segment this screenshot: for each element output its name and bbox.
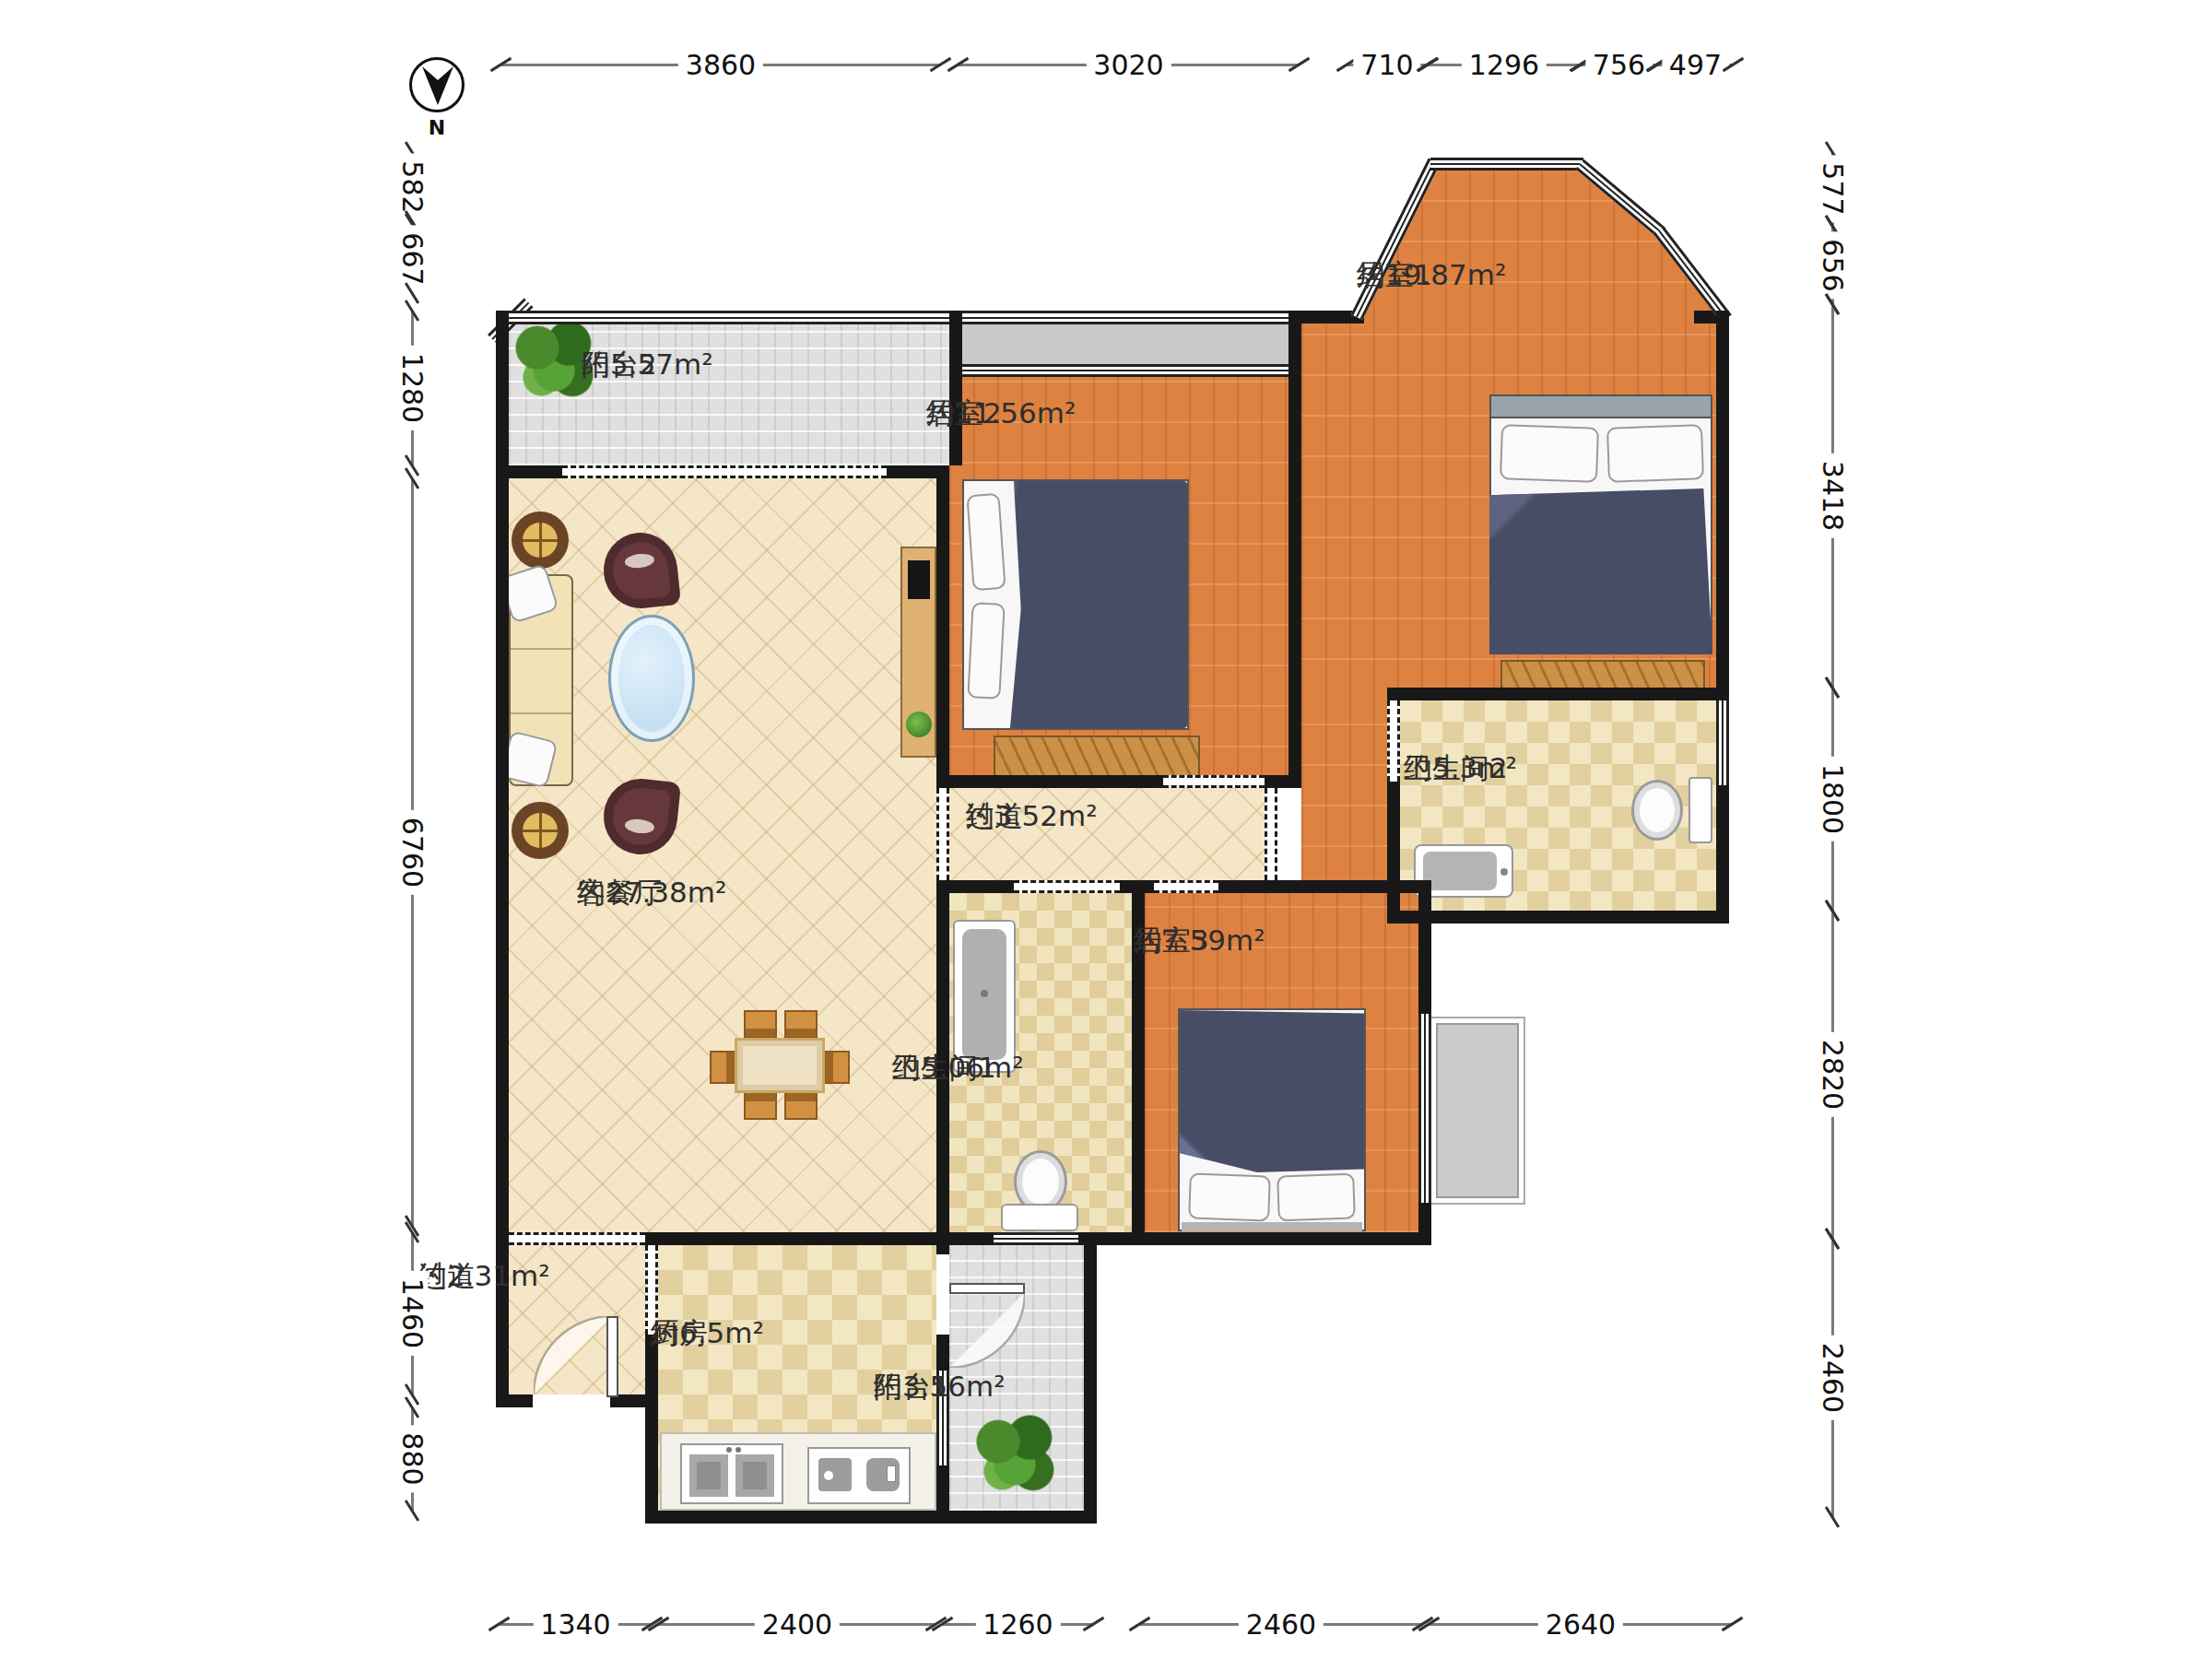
north-arrow-icon: [422, 66, 453, 105]
ac-platform: [1436, 1023, 1519, 1198]
dim-top-3: 1296: [1428, 50, 1581, 79]
room-area: 约7.59m²: [1134, 922, 1265, 959]
wall: [1078, 1232, 1431, 1245]
dim-right-3: 1800: [1818, 688, 1847, 911]
dim-right-0: 577: [1818, 152, 1847, 226]
room-area: 约5.06m²: [892, 1049, 1024, 1086]
dim-top-4: 756: [1581, 50, 1657, 79]
dim-left-0: 582: [397, 152, 427, 221]
wall: [936, 1335, 949, 1371]
headboard-bedroom1: [1489, 394, 1712, 418]
side-table-bottom: [512, 802, 569, 859]
wall: [645, 1335, 658, 1524]
wall: [949, 311, 962, 465]
north-compass: [409, 57, 465, 112]
window-bedroom1-bay-top: [1430, 158, 1583, 171]
door-bedroom3: [1154, 880, 1218, 893]
dining-table: [735, 1038, 825, 1093]
wall: [1716, 785, 1729, 924]
pillow-bedroom2: [967, 602, 1005, 700]
dim-bottom-4: 2640: [1429, 1609, 1733, 1639]
dining-chair: [744, 1091, 777, 1120]
floor-plan: 阳台2 约5.57m² 居室2 约11.56m² 居室1 约19.87m² 客餐…: [0, 0, 2212, 1659]
wall: [1387, 911, 1729, 924]
wall: [496, 1394, 533, 1407]
pillow-bedroom1: [1500, 424, 1599, 483]
dim-left-4: 1460: [397, 1232, 427, 1394]
wall: [936, 1245, 949, 1254]
wall: [645, 1511, 1097, 1524]
dim-bottom-0: 1340: [499, 1609, 653, 1639]
kitchen-stove: [807, 1447, 911, 1504]
door-bedroom2: [1163, 775, 1265, 788]
window-bath2: [1716, 700, 1729, 785]
dining-chair: [744, 1010, 777, 1039]
toilet-bath2: [1631, 780, 1683, 841]
opening-balcony2-living: [562, 465, 887, 478]
blanket-bedroom2: [1006, 481, 1187, 728]
wall: [936, 465, 949, 788]
dining-chair: [823, 1051, 850, 1084]
wall: [1418, 893, 1431, 1014]
room-area: 约27.38m²: [577, 874, 726, 911]
wall: [1288, 311, 1301, 788]
window-bedroom2-bay-outer: [962, 311, 1288, 324]
room-area: 约19.87m²: [1357, 256, 1506, 293]
window-bath1-balcony1: [994, 1232, 1078, 1245]
north-label: N: [409, 116, 465, 139]
dining-chair: [784, 1091, 818, 1120]
room-area: 约2.31m²: [418, 1257, 550, 1294]
toilet-tank-bath2: [1688, 777, 1712, 843]
dim-right-4: 2820: [1818, 911, 1847, 1239]
kitchen-sink: [680, 1443, 783, 1504]
wall: [936, 775, 1163, 788]
wall: [1265, 775, 1301, 788]
door-arc-entry: [534, 1316, 612, 1394]
wall: [1387, 688, 1729, 700]
dim-bottom-2: 1260: [942, 1609, 1094, 1639]
door-bedroom1: [1265, 788, 1277, 880]
pillow-bedroom1: [1606, 424, 1704, 483]
window-balcony2: [509, 311, 949, 324]
balcony1-door-leaf: [949, 1283, 1025, 1294]
room-area: 约3.56m²: [874, 1368, 1006, 1405]
window-sill-bedroom2-bay: [962, 324, 1288, 364]
dim-bottom-3: 2460: [1139, 1609, 1423, 1639]
entry-door-leaf: [606, 1316, 618, 1397]
floor-bedroom1-nook: [1301, 688, 1387, 888]
dim-left-2: 1280: [397, 311, 427, 465]
pillow-bedroom2: [966, 493, 1006, 591]
dim-top-1: 3020: [958, 50, 1300, 79]
wall: [1218, 880, 1431, 893]
plant-balcony1: [973, 1412, 1056, 1497]
blanket-bedroom1: [1489, 488, 1712, 654]
coffee-table: [608, 615, 695, 742]
wall: [645, 1232, 994, 1245]
window-bedroom2-bay-inner: [962, 364, 1288, 377]
dining-chair: [784, 1010, 818, 1039]
dim-left-5: 880: [397, 1407, 427, 1511]
side-table-top: [512, 512, 569, 569]
tv: [908, 560, 930, 599]
opening-living-hallway2: [509, 1232, 645, 1245]
dim-top-5: 497: [1657, 50, 1734, 79]
room-area: 约5.3m²: [1404, 749, 1517, 786]
door-bath1: [1014, 880, 1120, 893]
door-bath2: [1387, 700, 1400, 782]
room-area: 约6.5m²: [651, 1314, 764, 1351]
wall: [1716, 311, 1729, 700]
dim-right-5: 2460: [1818, 1239, 1847, 1517]
dining-chair: [710, 1051, 736, 1084]
wall: [1387, 782, 1400, 924]
dim-left-1: 667: [397, 224, 427, 293]
room-area: 约11.56m²: [926, 394, 1076, 431]
dim-left-3: 6760: [397, 478, 427, 1226]
pillow-bedroom3: [1277, 1173, 1356, 1222]
plant-tv-cabinet: [906, 712, 932, 737]
footboard-bedroom3: [1182, 1222, 1362, 1231]
dim-right-1: 656: [1818, 226, 1847, 304]
wall: [1084, 1245, 1097, 1524]
dim-top-2: 710: [1347, 50, 1428, 79]
dim-top-0: 3860: [500, 50, 941, 79]
toilet-tank-bath1: [1001, 1204, 1078, 1231]
window-bedroom3: [1418, 1014, 1431, 1203]
dim-right-2: 3418: [1818, 304, 1847, 688]
door-arc-balcony1: [949, 1292, 1025, 1368]
opening-living-hallway1: [936, 788, 949, 880]
room-area: 约5.57m²: [582, 346, 713, 382]
wall: [496, 465, 562, 478]
pillow-bedroom3: [1188, 1172, 1271, 1221]
blanket-bedroom3: [1180, 1010, 1364, 1172]
room-area: 约3.52m²: [966, 797, 1098, 834]
dim-bottom-1: 2400: [658, 1609, 936, 1639]
